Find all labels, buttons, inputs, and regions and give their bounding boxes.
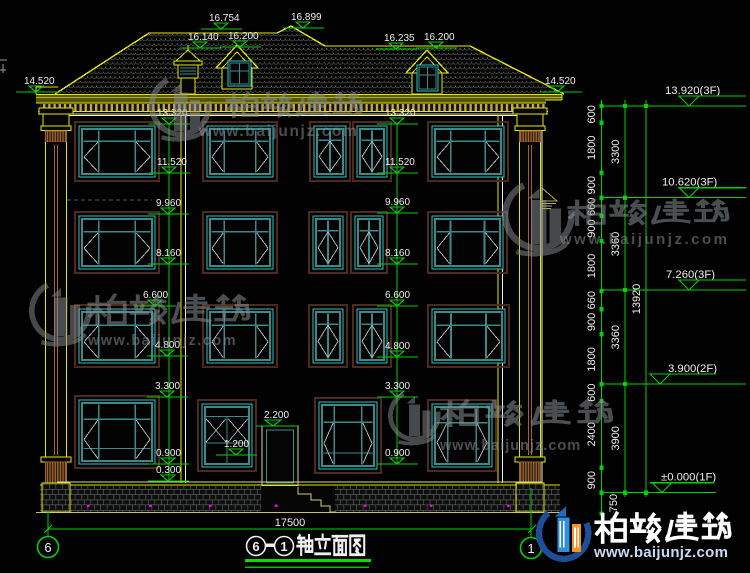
svg-text:www.baijunjz.com: www.baijunjz.com	[559, 231, 729, 248]
svg-text:11.520: 11.520	[157, 157, 187, 168]
svg-text:6: 6	[252, 539, 259, 554]
svg-text:3.300: 3.300	[155, 381, 180, 392]
svg-text:600: 600	[586, 105, 598, 123]
svg-text:0.300: 0.300	[156, 465, 181, 476]
svg-text:9.960: 9.960	[156, 198, 181, 209]
svg-text:4.800: 4.800	[385, 341, 410, 352]
svg-text:1800: 1800	[586, 347, 598, 371]
svg-text:www.baijunjz.com: www.baijunjz.com	[87, 333, 237, 349]
svg-text:10.620(3F): 10.620(3F)	[662, 177, 717, 189]
svg-text:16.140: 16.140	[188, 32, 219, 43]
svg-text:13920: 13920	[631, 284, 643, 315]
svg-text:2400: 2400	[586, 422, 598, 446]
svg-text:1.200: 1.200	[224, 439, 249, 450]
svg-text:900: 900	[586, 313, 598, 331]
svg-text:3360: 3360	[610, 325, 622, 349]
svg-text:14.520: 14.520	[24, 76, 55, 87]
svg-text:8.160: 8.160	[156, 248, 181, 259]
svg-text:16.754: 16.754	[209, 13, 240, 24]
svg-text:14.520: 14.520	[545, 76, 576, 87]
svg-text:0.900: 0.900	[156, 448, 181, 459]
svg-text:660: 660	[586, 291, 598, 309]
svg-text:16.200: 16.200	[228, 31, 259, 42]
svg-text:3.900(2F): 3.900(2F)	[668, 363, 717, 375]
svg-text:1800: 1800	[586, 135, 598, 159]
svg-text:3300: 3300	[610, 140, 622, 164]
svg-text:6.600: 6.600	[385, 290, 410, 301]
svg-text:www.baijunjz.com: www.baijunjz.com	[439, 438, 581, 454]
svg-text:13.320: 13.320	[385, 108, 416, 119]
svg-text:17500: 17500	[275, 517, 306, 529]
svg-text:1: 1	[280, 539, 287, 554]
svg-text:1: 1	[527, 541, 534, 556]
svg-text:±0.000(1F): ±0.000(1F)	[661, 472, 716, 484]
svg-text:0.900: 0.900	[385, 448, 410, 459]
svg-text:9.960: 9.960	[385, 197, 410, 208]
svg-text:11.520: 11.520	[385, 157, 415, 168]
svg-text:8.160: 8.160	[385, 248, 410, 259]
svg-text:3900: 3900	[610, 426, 622, 450]
svg-text:7.260(3F): 7.260(3F)	[666, 269, 715, 281]
svg-text:13.920(3F): 13.920(3F)	[665, 85, 720, 97]
svg-text:1800: 1800	[586, 254, 598, 278]
svg-text:6: 6	[44, 540, 51, 555]
svg-text:750: 750	[608, 494, 620, 512]
svg-text:3.300: 3.300	[385, 381, 410, 392]
svg-text:16.235: 16.235	[384, 33, 415, 44]
svg-text:16.200: 16.200	[424, 32, 455, 43]
svg-text:600: 600	[586, 384, 598, 402]
svg-text:900: 900	[586, 471, 598, 489]
svg-text:16.899: 16.899	[291, 12, 322, 23]
svg-text:2.200: 2.200	[264, 410, 289, 421]
svg-text:www.baijunjz.com: www.baijunjz.com	[593, 544, 728, 561]
svg-text:900: 900	[586, 176, 598, 194]
svg-text:www.baijunjz.com: www.baijunjz.com	[198, 123, 358, 140]
